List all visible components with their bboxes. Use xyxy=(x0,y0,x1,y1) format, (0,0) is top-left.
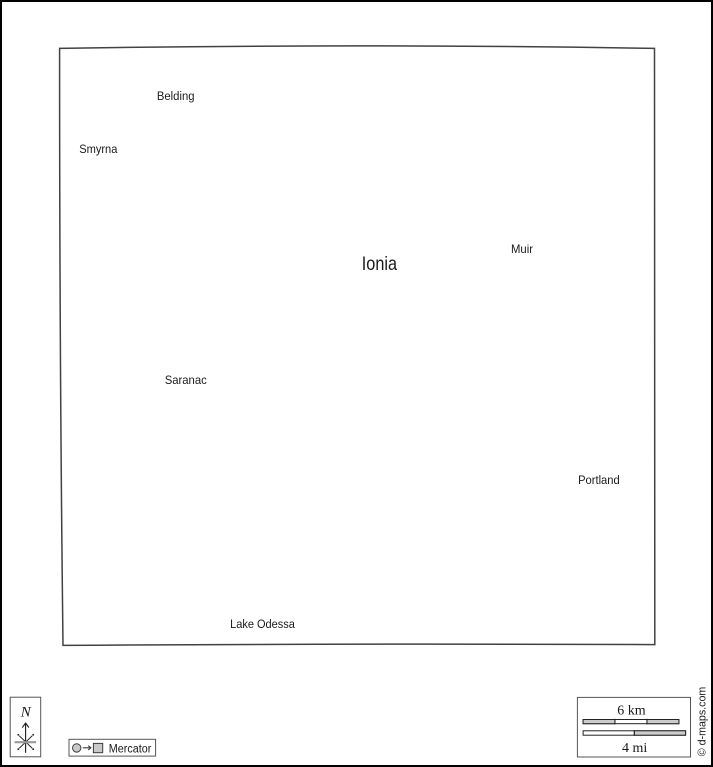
svg-text:Lake Odessa: Lake Odessa xyxy=(230,617,295,631)
svg-text:Portland: Portland xyxy=(578,473,620,487)
svg-text:6 km: 6 km xyxy=(617,704,646,719)
svg-text:© d-maps.com: © d-maps.com xyxy=(696,687,708,757)
svg-text:Smyrna: Smyrna xyxy=(79,142,118,156)
svg-text:Mercator: Mercator xyxy=(109,743,152,755)
svg-text:Muir: Muir xyxy=(511,242,533,256)
svg-text:Belding: Belding xyxy=(157,89,195,103)
svg-text:N: N xyxy=(20,705,32,721)
svg-text:4 mi: 4 mi xyxy=(622,741,647,756)
svg-text:Saranac: Saranac xyxy=(165,373,207,387)
svg-text:Ionia: Ionia xyxy=(362,253,397,275)
